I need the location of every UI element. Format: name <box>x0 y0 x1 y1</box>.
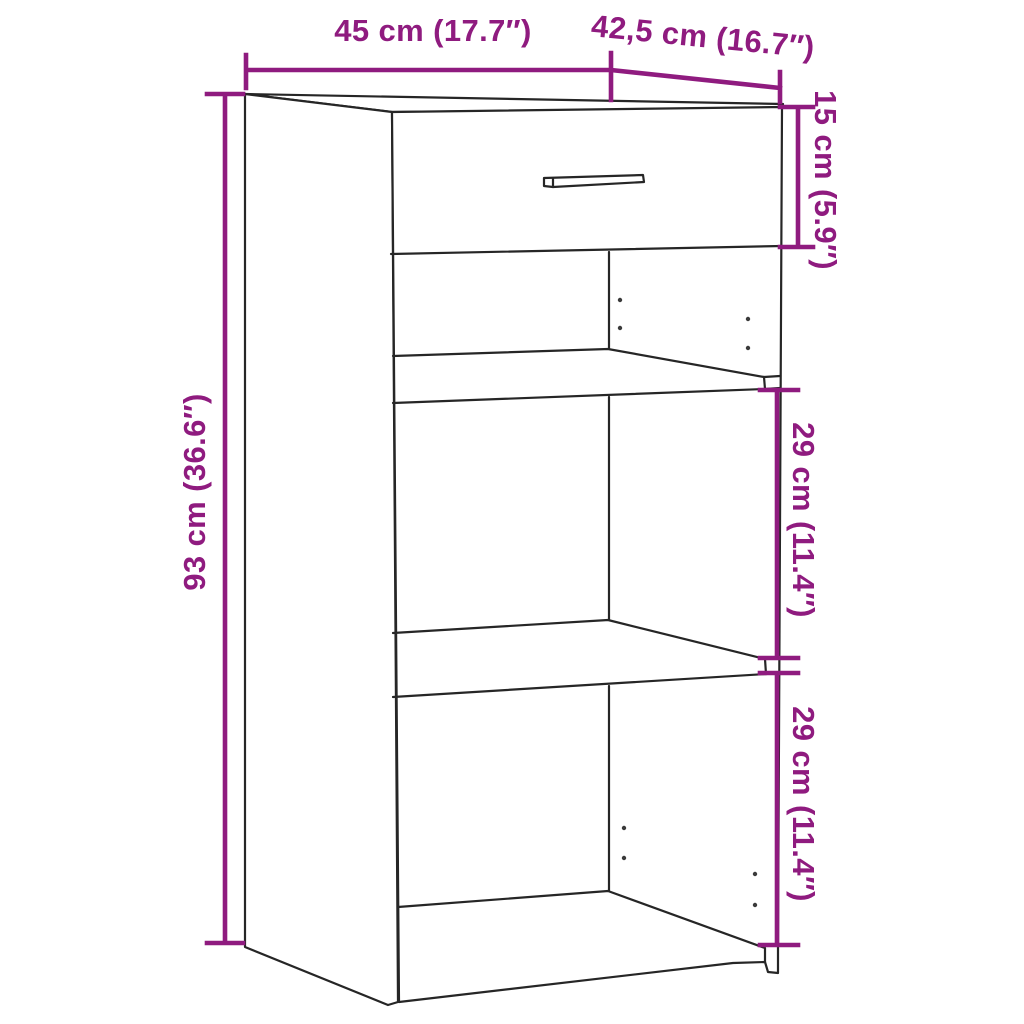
dim-depth-line <box>611 70 780 102</box>
product-dimension-diagram: 45 cm (17.7″) 42,5 cm (16.7″) 15 cm (5.9… <box>0 0 1024 1024</box>
dim-depth-label: 42,5 cm (16.7″) <box>590 8 817 65</box>
dim-drawer-height-label: 15 cm (5.9″) <box>808 90 843 270</box>
cabinet-front-face <box>392 107 782 1002</box>
cabinet-diagram-svg: 45 cm (17.7″) 42,5 cm (16.7″) 15 cm (5.9… <box>0 0 1024 1024</box>
dim-lower-shelf-gap-label: 29 cm (11.4″) <box>786 706 821 902</box>
dim-width-label: 45 cm (17.7″) <box>334 13 532 48</box>
dim-total-height-line <box>207 94 243 943</box>
cabinet-left-side-panel <box>245 94 398 1005</box>
dim-upper-shelf-gap-label: 29 cm (11.4″) <box>786 422 821 618</box>
cabinet-drawing <box>245 94 783 1005</box>
dim-width-line <box>246 53 611 100</box>
dim-total-height-label: 93 cm (36.6″) <box>177 393 212 591</box>
